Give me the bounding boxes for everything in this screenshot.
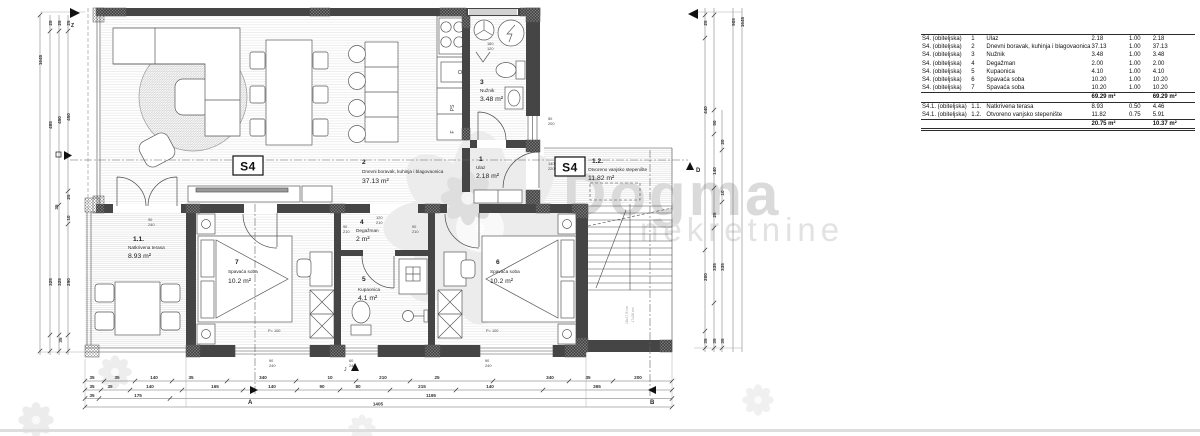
cell-unit: S4. (obiteljska) (921, 76, 970, 84)
dim-label: 25 (434, 375, 440, 380)
cell-no: 3 (970, 51, 985, 59)
cell-unit: S4. (obiteljska) (921, 43, 970, 51)
cell-name: Kupaonica (985, 68, 1090, 76)
cell-name: Degažman (985, 60, 1090, 68)
cell-coef: 1.00 (1128, 76, 1152, 84)
cell-unit: S4. (obiteljska) (921, 51, 970, 59)
room3-area: 3.48 m² (480, 96, 504, 103)
room2-name: Dnevni boravak, kuhinja i blagovaonica (362, 169, 444, 174)
cell-no: 1 (970, 35, 985, 44)
room6-name: Spavaća soba (490, 269, 520, 274)
table-row: S4.1. (obiteljska)1.1.Natkrivena terasa8… (921, 102, 1195, 111)
dim-label: 90 (319, 384, 325, 389)
table-row: S4. (obiteljska)2Dnevni boravak, kuhinja… (921, 43, 1195, 51)
dim-label: 80 (355, 384, 361, 389)
floorplan-page: Dogma nekretnine (0, 0, 1200, 436)
dim-label: 450 (57, 116, 62, 124)
cell-unit: S4.1. (obiteljska) (921, 111, 970, 120)
cell-coef: 1.00 (1128, 60, 1152, 68)
unit-label-box: S4 (240, 160, 256, 174)
dim-label: 35 (58, 337, 63, 343)
dim-label: 10 (327, 375, 333, 380)
dim-label: 140 (486, 384, 494, 389)
dim-label: 1195 (426, 393, 436, 398)
stairs-name: Otvoreno vanjsko stepenište (588, 167, 648, 172)
dim-stack: 210 (343, 229, 350, 234)
pantry-label: PS (450, 104, 456, 111)
cell-unit: S4.1. (obiteljska) (921, 102, 970, 111)
section-d-square (56, 152, 61, 157)
cell-no: 7 (970, 84, 985, 93)
cell-total: 3.48 (1152, 51, 1195, 59)
wc-tank (516, 61, 525, 79)
cell-total: 5.91 (1152, 111, 1195, 120)
terrace-table (115, 282, 160, 335)
room1-area: 2.18 m² (476, 173, 500, 180)
cell-subtotal-area: 69.29 m² (1091, 93, 1128, 102)
page-edge-divider (0, 429, 1200, 432)
dim-label: 335 (720, 263, 725, 271)
parapet-label: P= 100 (486, 328, 499, 333)
dim-total-label: 1405 (373, 402, 384, 407)
cell-area: 3.48 (1091, 51, 1128, 59)
room4-area: 2 m² (356, 236, 370, 243)
room1-number: 1 (479, 156, 483, 163)
dim-label: 140 (150, 375, 158, 380)
terrace-number: 1.1. (133, 236, 144, 243)
dim-label: 905 (731, 18, 736, 26)
dim-label: 200 (634, 375, 642, 380)
cell-no: 2 (970, 43, 985, 51)
dim-stack: 210 (412, 229, 419, 234)
cell-unit: S4. (obiteljska) (921, 68, 970, 76)
dim-label: 175 (134, 393, 142, 398)
room7-number: 7 (235, 259, 239, 266)
dim-stack: 240 (269, 363, 276, 368)
room6-number: 6 (496, 259, 500, 266)
room5-area: 4.1 m² (358, 295, 378, 302)
cell-no: 1.2. (970, 111, 985, 120)
floor-plan-drawing: Dogma nekretnine (0, 0, 900, 436)
fridge-label: F (450, 130, 456, 133)
cell-unit: S4. (obiteljska) (921, 60, 970, 68)
dim-label: 140 (146, 384, 154, 389)
cell-no: 6 (970, 76, 985, 84)
dim-label: 485 (48, 121, 53, 129)
cell-name: Spavaća soba (985, 84, 1090, 93)
dim-label: 25 (66, 194, 71, 200)
room2-area: 37.13 m² (362, 178, 390, 185)
cell-no: 4 (970, 60, 985, 68)
area-table: S4. (obiteljska)1Ulaz2.181.002.18 S4. (o… (921, 34, 1195, 131)
north-j-label: J (344, 367, 347, 373)
dim-label: 200 (703, 273, 708, 281)
dim-label: 35 (703, 338, 708, 344)
bottom-dimensions: 35 35 140 35 340 10 210 25 340 35 200 35… (89, 375, 642, 407)
dim-label: 35 (107, 384, 113, 389)
dim-label: 20 (720, 139, 725, 145)
cell-name: Spavaća soba (985, 76, 1090, 84)
dim-label: 340 (259, 375, 267, 380)
table-row: S4. (obiteljska)1Ulaz2.181.002.18 (921, 35, 1195, 44)
stair-note: 17x28 cm (631, 307, 635, 322)
cell-unit: S4. (obiteljska) (921, 84, 970, 93)
dim-label: 10 (720, 190, 725, 196)
wc-toilet (496, 63, 516, 78)
tv (196, 188, 288, 192)
dim-label: 25 (57, 20, 62, 26)
table-row: S4. (obiteljska)3Nužnik3.481.003.48 (921, 51, 1195, 59)
room4-number: 4 (360, 219, 364, 226)
dim-stack: 220 (548, 166, 555, 171)
section-z-arrow-icon (70, 8, 80, 18)
dim-stack: 240 (148, 222, 155, 227)
dim-stack: 240 (485, 363, 492, 368)
boiler-icon (498, 20, 524, 46)
dim-label: 35 (114, 375, 120, 380)
cell-area: 4.10 (1091, 68, 1128, 76)
dim-stack: 210 (376, 220, 383, 225)
basin5 (403, 311, 414, 322)
section-b-label: B (650, 400, 655, 406)
dim-label: 35 (54, 204, 59, 210)
section-a-arrow-icon (250, 386, 258, 394)
room6-area: 10.2 m² (490, 278, 514, 285)
room7-name: Spavaća soba (228, 269, 258, 274)
room2-number: 2 (362, 159, 366, 166)
cell-subtotal-total: 10.37 m² (1152, 120, 1195, 130)
dim-label: 25 (712, 212, 717, 218)
terrace-name: Natkrivena terasa (128, 245, 165, 250)
dim-label: 325 (57, 278, 62, 286)
table-row: S4. (obiteljska)4Degažman2.001.002.00 (921, 60, 1195, 68)
cell-area: 37.13 (1091, 43, 1128, 51)
cell-name: Otvoreno vanjsko stepenište (985, 111, 1090, 120)
section-d-label: D (696, 168, 701, 174)
room1-name: Ulaz (476, 165, 486, 170)
unit-label-box: S4 (562, 161, 578, 175)
cell-total: 4.10 (1152, 68, 1195, 76)
section-z-label: Z (71, 23, 74, 29)
dim-label: 1645 (740, 16, 745, 27)
cell-coef: 1.00 (1128, 35, 1152, 44)
terrace-area: 8.93 m² (128, 253, 152, 260)
left-dimensions: 1645 25 25 25 485 450 450 25 35 10 325 3… (38, 20, 71, 343)
dim-label: 365 (593, 384, 601, 389)
dim-label: 165 (211, 384, 219, 389)
cell-total: 2.18 (1152, 35, 1195, 44)
cell-unit: S4. (obiteljska) (921, 35, 970, 44)
room3-name: Nužnik (480, 88, 495, 93)
dim-label: 140 (712, 167, 717, 175)
dim-label: 35 (89, 393, 95, 398)
cell-coef: 0.75 (1128, 111, 1152, 120)
section-a-label: A (248, 400, 253, 406)
table-row: S4.1. (obiteljska)1.2.Otvoreno vanjsko s… (921, 111, 1195, 120)
subtotal-row: 20.75 m²10.37 m² (921, 120, 1195, 130)
room5-name: Kupaonica (358, 287, 381, 292)
cell-name: Dnevni boravak, kuhinja i blagovaonica (985, 43, 1090, 51)
room3-number: 3 (480, 79, 484, 86)
dining-table (266, 40, 312, 145)
cell-coef: 1.00 (1128, 84, 1152, 93)
cell-coef: 1.00 (1128, 68, 1152, 76)
cell-area: 10.20 (1091, 84, 1128, 93)
dim-label: 290 (66, 278, 71, 286)
dim-label: 335 (712, 263, 717, 271)
cell-total: 37.13 (1152, 43, 1195, 51)
room4-name: Degažman (356, 228, 379, 233)
cell-area: 11.82 (1091, 111, 1128, 120)
dim-label: 325 (48, 278, 53, 286)
dim-stack: 200 (548, 121, 555, 126)
cell-no: 5 (970, 68, 985, 76)
dim-label: 35 (188, 375, 194, 380)
dim-label: 35 (585, 375, 591, 380)
table-row: S4. (obiteljska)7Spavaća soba10.201.0010… (921, 84, 1195, 93)
cell-area: 2.00 (1091, 60, 1128, 68)
cell-area: 8.93 (1091, 102, 1128, 111)
dim-label: 25 (48, 20, 53, 26)
desk-room7 (310, 252, 332, 286)
dim-label: 35 (89, 375, 95, 380)
stair-note: 18x17,8 cm (625, 306, 629, 324)
section-b-arrow-icon (648, 386, 656, 394)
dim-label: 440 (703, 106, 708, 114)
cell-total: 2.00 (1152, 60, 1195, 68)
cell-name: Ulaz (985, 35, 1090, 44)
cell-coef: 1.00 (1128, 43, 1152, 51)
dim-label: 25 (703, 20, 708, 26)
cell-total: 10.20 (1152, 76, 1195, 84)
dim-label: 1645 (38, 54, 43, 65)
cell-no: 1.1. (970, 102, 985, 111)
cell-name: Natkrivena terasa (985, 102, 1090, 111)
cell-coef: 0.50 (1128, 102, 1152, 111)
cell-area: 2.18 (1091, 35, 1128, 44)
dim-label: 450 (66, 113, 71, 121)
room5-number: 5 (362, 276, 366, 283)
dim-label: 215 (418, 384, 426, 389)
dim-label: 340 (546, 375, 554, 380)
stairs-area: 11.82 m² (588, 175, 615, 182)
cell-total: 4.46 (1152, 102, 1195, 111)
table-row: S4. (obiteljska)6Spavaća soba10.201.0010… (921, 76, 1195, 84)
room7-area: 10.2 m² (228, 278, 252, 285)
wc5-tank (351, 325, 371, 335)
dim-label: 35 (712, 338, 717, 344)
subtotal-row: 69.29 m²69.29 m² (921, 93, 1195, 102)
dim-label: 10 (66, 215, 71, 221)
dim-label: 35 (720, 338, 725, 344)
cell-subtotal-total: 69.29 m² (1152, 93, 1195, 102)
cell-total: 10.20 (1152, 84, 1195, 93)
table-row: S4. (obiteljska)5Kupaonica4.101.004.10 (921, 68, 1195, 76)
dim-label: 140 (268, 384, 276, 389)
cell-name: Nužnik (985, 51, 1090, 59)
stairs-number: 1.2. (592, 158, 603, 165)
cell-coef: 1.00 (1128, 51, 1152, 59)
section-arrow-icon (688, 9, 698, 19)
dim-stack: 120 (487, 46, 494, 51)
dim-label: 210 (379, 375, 387, 380)
cell-area: 10.20 (1091, 76, 1128, 84)
dim-label: 35 (89, 384, 95, 389)
parapet-label: P= 100 (268, 328, 281, 333)
wc5-toilet (352, 301, 370, 323)
dim-label: 50 (712, 120, 717, 126)
cell-subtotal-area: 20.75 m² (1091, 120, 1128, 130)
